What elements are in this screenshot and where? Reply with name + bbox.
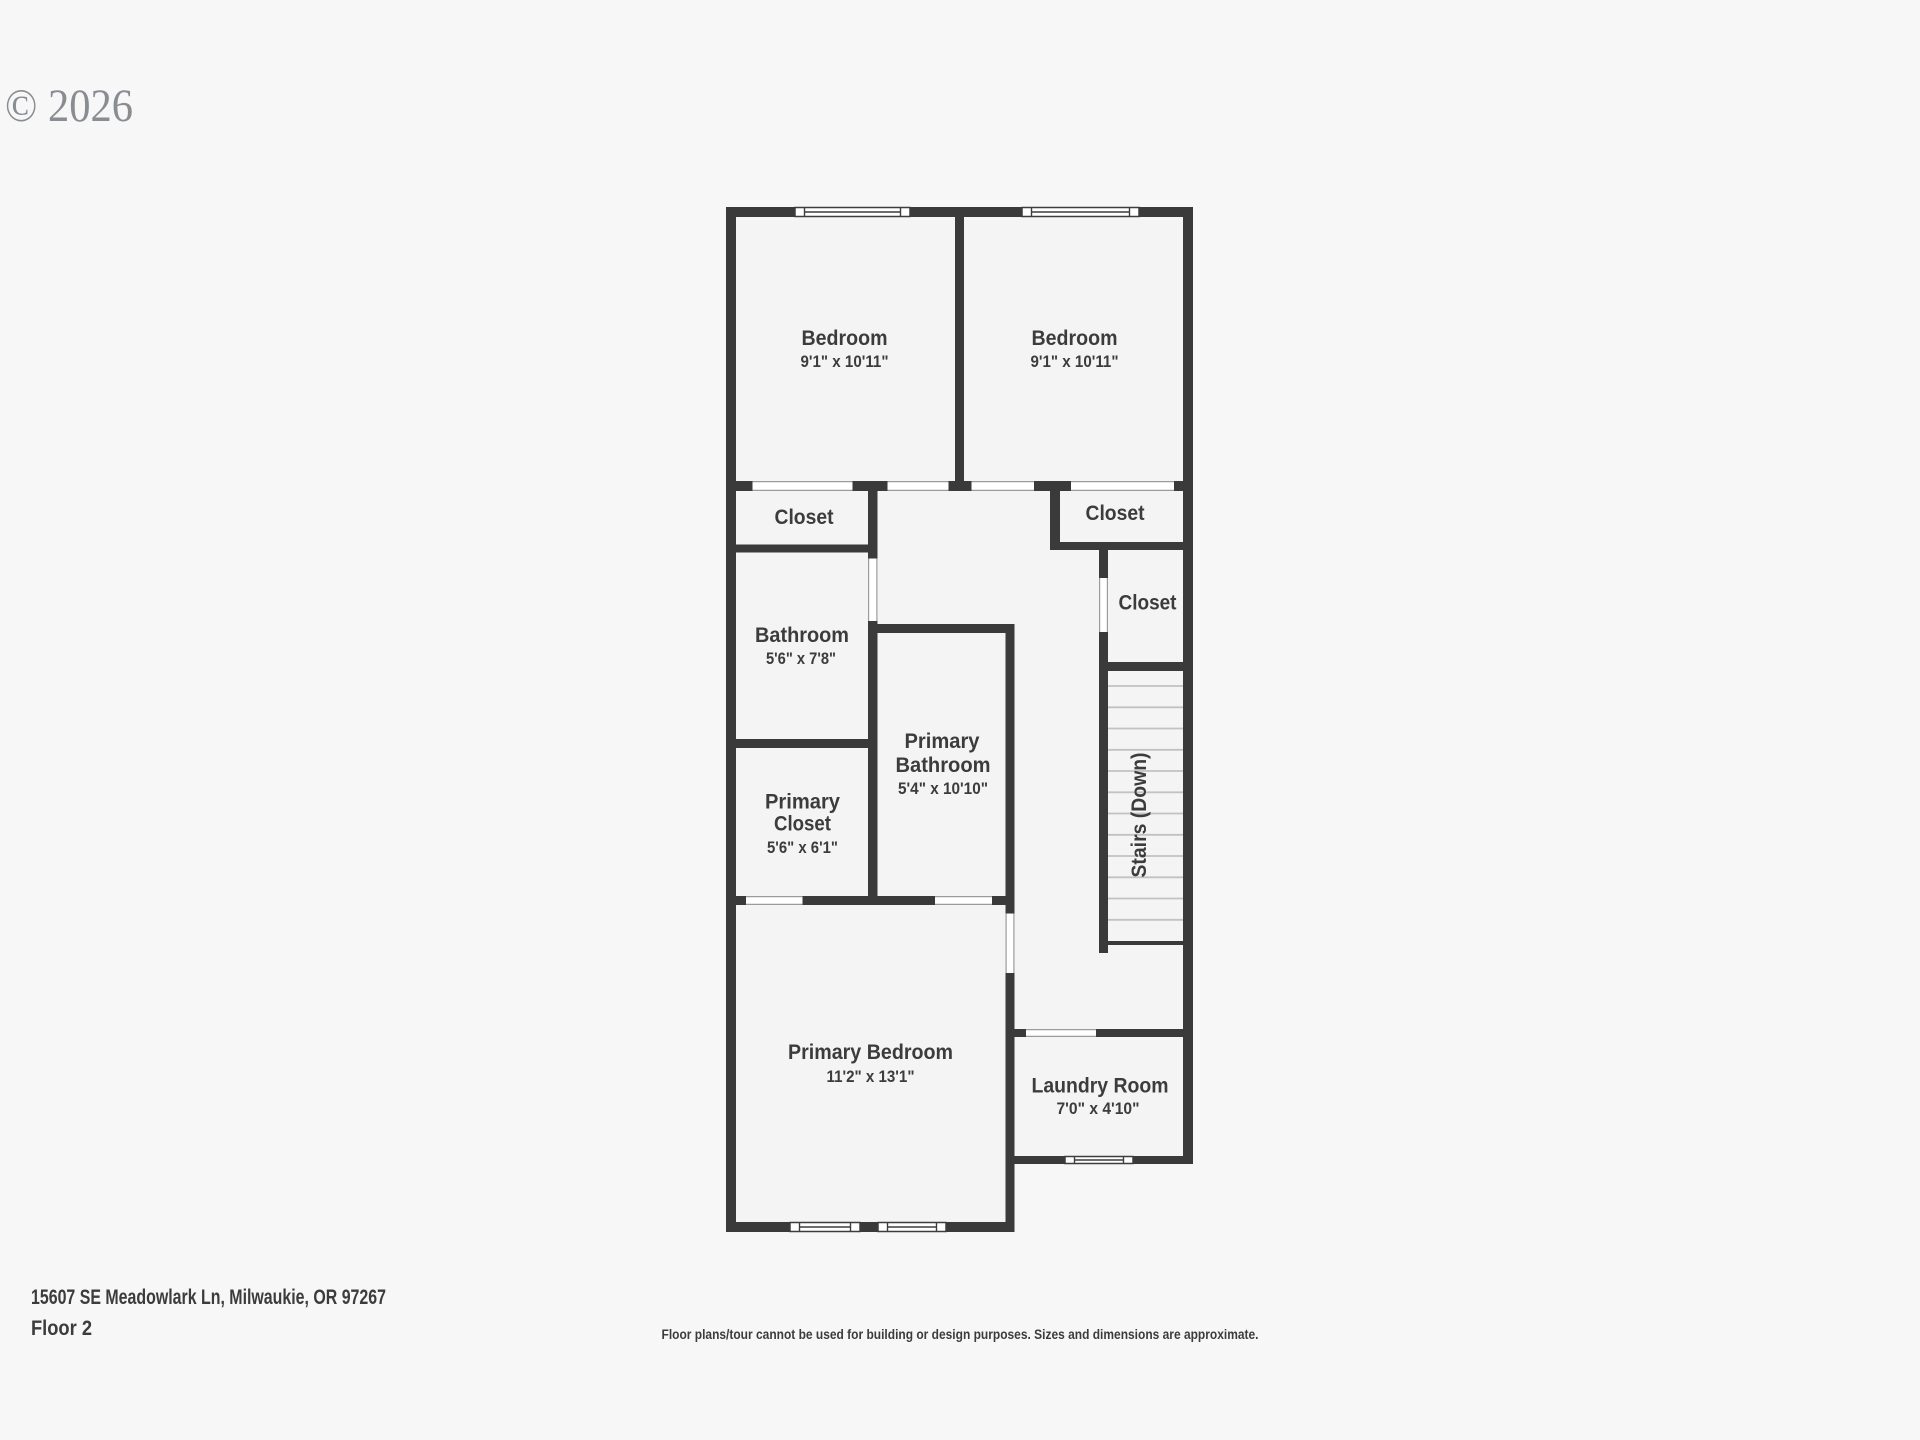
svg-text:Closet: Closet	[1086, 502, 1145, 525]
svg-text:© 2026: © 2026	[5, 80, 133, 132]
svg-text:Floor plans/tour cannot be use: Floor plans/tour cannot be used for buil…	[662, 1327, 1259, 1342]
svg-text:Bathroom: Bathroom	[896, 754, 991, 777]
svg-text:Stairs (Down): Stairs (Down)	[1128, 753, 1151, 878]
svg-text:Closet: Closet	[775, 506, 834, 529]
svg-text:Primary Bedroom: Primary Bedroom	[788, 1041, 953, 1064]
svg-text:Closet: Closet	[774, 813, 831, 836]
svg-text:7'0" x 4'10": 7'0" x 4'10"	[1057, 1099, 1140, 1118]
svg-text:Laundry Room: Laundry Room	[1032, 1075, 1169, 1098]
svg-text:5'4" x 10'10": 5'4" x 10'10"	[898, 779, 988, 798]
svg-text:Primary: Primary	[905, 730, 980, 753]
svg-text:Bedroom: Bedroom	[1032, 327, 1118, 350]
svg-text:Floor 2: Floor 2	[31, 1317, 92, 1340]
svg-text:5'6" x 6'1": 5'6" x 6'1"	[767, 838, 838, 857]
svg-text:Bedroom: Bedroom	[802, 327, 888, 350]
svg-text:11'2" x 13'1": 11'2" x 13'1"	[827, 1067, 915, 1086]
svg-text:5'6" x 7'8": 5'6" x 7'8"	[766, 649, 836, 668]
svg-text:Primary: Primary	[765, 791, 840, 814]
svg-text:Closet: Closet	[1119, 592, 1177, 615]
svg-text:Bathroom: Bathroom	[755, 624, 849, 647]
svg-text:9'1" x 10'11": 9'1" x 10'11"	[1031, 352, 1119, 371]
svg-text:15607 SE Meadowlark Ln, Milwau: 15607 SE Meadowlark Ln, Milwaukie, OR 97…	[31, 1286, 386, 1309]
svg-text:9'1" x 10'11": 9'1" x 10'11"	[801, 352, 889, 371]
